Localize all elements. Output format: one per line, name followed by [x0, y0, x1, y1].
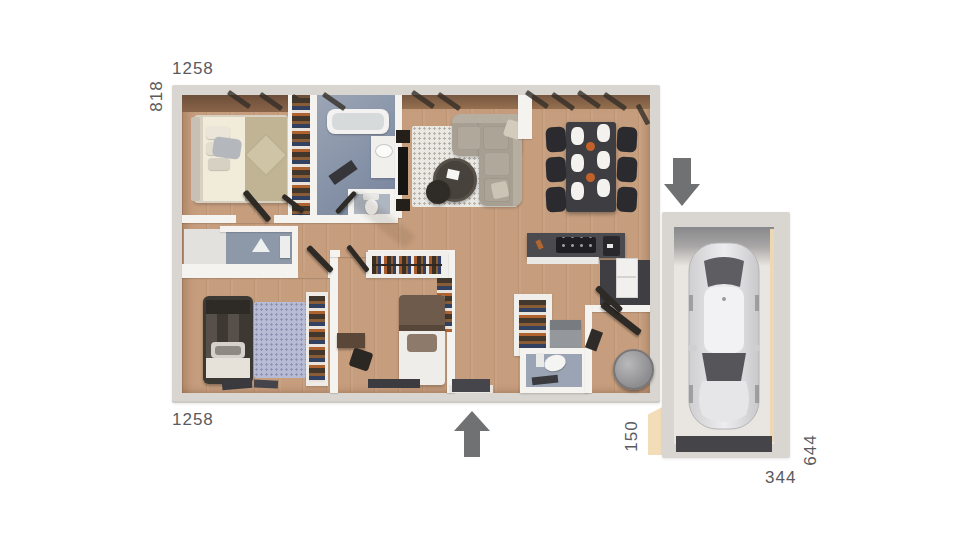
- dimension-label-bottom-width: 1258: [172, 410, 214, 430]
- wall-stub-living-dining: [518, 95, 532, 139]
- car-antenna: [722, 297, 726, 301]
- bedroom2-rug: [254, 302, 306, 378]
- arrow-up-head: [454, 411, 490, 431]
- place-setting: [571, 154, 584, 172]
- arrow-up-icon: [454, 411, 490, 457]
- tv-speaker: [396, 130, 410, 143]
- car-mirror: [688, 345, 697, 351]
- double-bed-headboard: [191, 117, 200, 201]
- wall-shower-top: [220, 226, 298, 232]
- car-wheel: [755, 385, 759, 403]
- bed-pillow: [208, 158, 230, 170]
- bed-throw-cushion: [212, 136, 243, 160]
- pillow-shadow: [215, 346, 241, 355]
- garage-door: [676, 436, 772, 452]
- floor-mat: [368, 379, 420, 388]
- car-wheel: [689, 295, 693, 311]
- car-graphic: [688, 241, 760, 431]
- tv-screen: [398, 147, 408, 195]
- bed-foot-sheet: [206, 358, 250, 378]
- floor-mat: [254, 379, 278, 388]
- desk: [337, 333, 365, 348]
- shower-fixture: [280, 236, 290, 258]
- coffee-cup: [607, 244, 613, 248]
- entrance-doormat: [452, 379, 490, 392]
- sofa-cushion: [484, 152, 510, 176]
- sofa-pillow: [491, 181, 510, 200]
- dimension-label-passage-depth: 150: [622, 420, 642, 451]
- dining-chair: [616, 156, 637, 182]
- dining-chair: [545, 156, 566, 182]
- place-setting: [571, 182, 584, 200]
- wall-closet-bathroom: [310, 95, 317, 218]
- hall-closet-clothes: [519, 300, 546, 350]
- dimension-label-garage-width: 344: [765, 468, 796, 488]
- arrow-down-icon: [664, 158, 700, 206]
- bedroom1-wardrobe: [292, 98, 310, 215]
- car-roof: [704, 287, 744, 353]
- wall-shower-bottom: [182, 264, 298, 271]
- dining-chair: [545, 126, 566, 152]
- brown-blanket: [399, 295, 445, 329]
- dining-chair: [545, 186, 566, 212]
- car-wheel: [689, 385, 693, 403]
- blanket-fold: [399, 325, 445, 331]
- blanket-fold: [206, 300, 250, 314]
- refrigerator-door-split: [616, 276, 636, 278]
- coffee-table-small: [426, 180, 450, 204]
- cooktop: [556, 237, 596, 253]
- floorplan-canvas: 1258 818 1258 150 644 344: [0, 0, 960, 540]
- bedroom2-wardrobe-clothes: [309, 296, 325, 382]
- arrow-down-shaft: [673, 158, 691, 184]
- dimension-label-top-width: 1258: [172, 59, 214, 79]
- place-setting: [597, 151, 610, 169]
- dining-chair: [616, 126, 637, 152]
- dining-chair: [616, 186, 637, 212]
- car-mirror: [751, 345, 760, 351]
- car-wheel: [755, 295, 759, 311]
- bedroom2-door-opening: [298, 271, 328, 278]
- washbasin: [375, 144, 393, 158]
- dimension-label-garage-depth: 644: [801, 434, 821, 465]
- car: [688, 241, 760, 431]
- arrow-down-head: [664, 184, 700, 206]
- washing-machine-panel: [550, 320, 581, 330]
- refrigerator: [616, 258, 638, 298]
- car-windshield: [702, 353, 746, 381]
- folded-towel: [252, 238, 270, 252]
- car-hood: [699, 381, 749, 422]
- car-rear-window: [704, 257, 744, 287]
- tv-speaker: [396, 199, 410, 211]
- bathtub-basin: [332, 113, 384, 130]
- fruit-bowl: [586, 173, 595, 182]
- water-heater: [613, 349, 654, 390]
- fruit-bowl: [586, 142, 595, 151]
- place-setting: [597, 179, 610, 197]
- kitchen-cabinet-front: [527, 257, 599, 264]
- garage-wall-cut-strip: [770, 229, 774, 442]
- place-setting: [597, 124, 610, 142]
- toilet-tank: [536, 353, 544, 367]
- sofa-cushion: [457, 126, 481, 150]
- shower-tray: [184, 229, 226, 265]
- arrow-up-shaft: [464, 431, 480, 457]
- place-setting: [571, 127, 584, 145]
- bed-pillow: [407, 334, 437, 352]
- dimension-label-left-depth: 818: [147, 80, 167, 111]
- closet-rail: [372, 264, 442, 266]
